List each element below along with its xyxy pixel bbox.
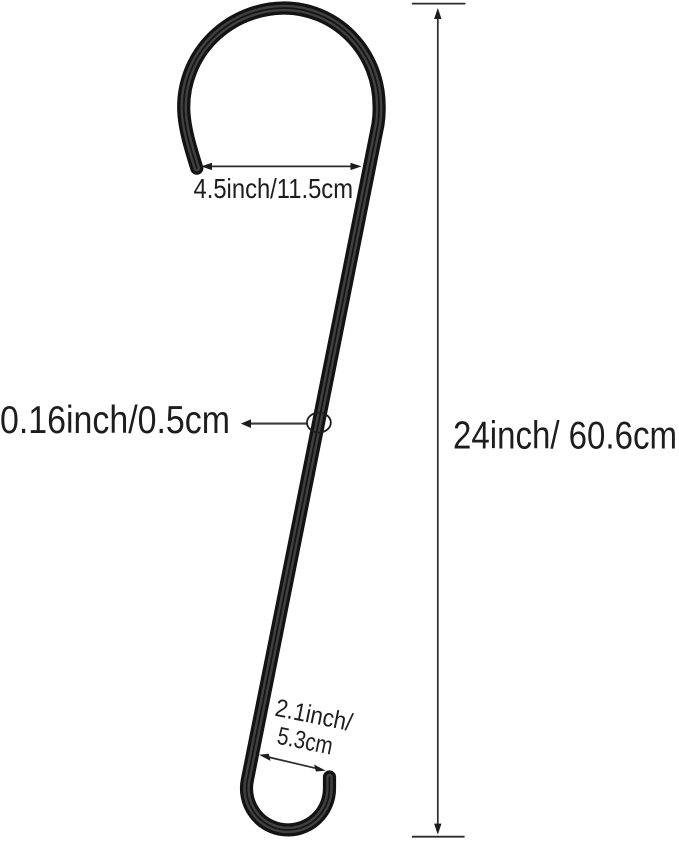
svg-text:0.16inch/0.5cm: 0.16inch/0.5cm: [0, 399, 230, 442]
svg-text:4.5inch/11.5cm: 4.5inch/11.5cm: [194, 173, 354, 204]
svg-text:24inch/ 60.6cm: 24inch/ 60.6cm: [453, 415, 677, 458]
